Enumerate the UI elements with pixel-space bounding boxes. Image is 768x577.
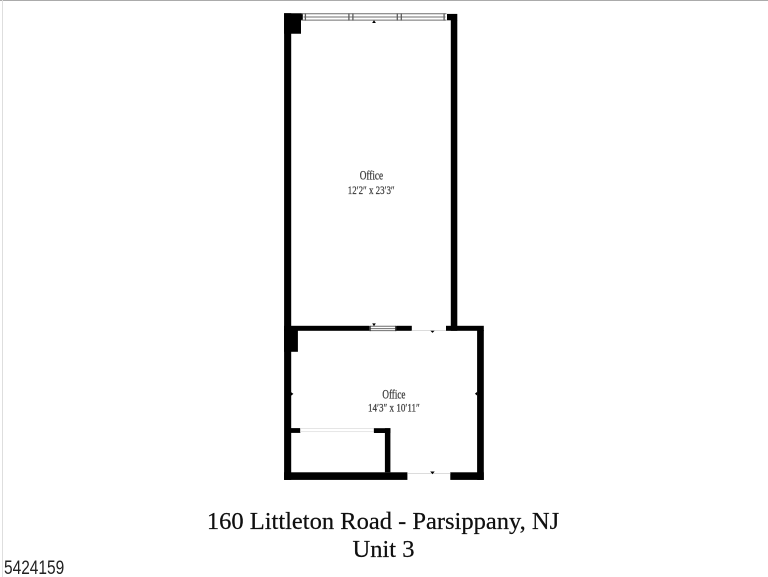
svg-text:160 Littleton Road - Parsippan: 160 Littleton Road - Parsippany, NJ	[207, 508, 560, 535]
svg-text:14′3″ x 10′11″: 14′3″ x 10′11″	[368, 401, 420, 414]
svg-text:Unit 3: Unit 3	[353, 536, 415, 563]
svg-text:Office: Office	[382, 387, 405, 401]
svg-text:5424159: 5424159	[4, 557, 64, 577]
svg-text:Office: Office	[360, 168, 384, 182]
svg-text:12′2″ x 23′3″: 12′2″ x 23′3″	[348, 184, 395, 197]
